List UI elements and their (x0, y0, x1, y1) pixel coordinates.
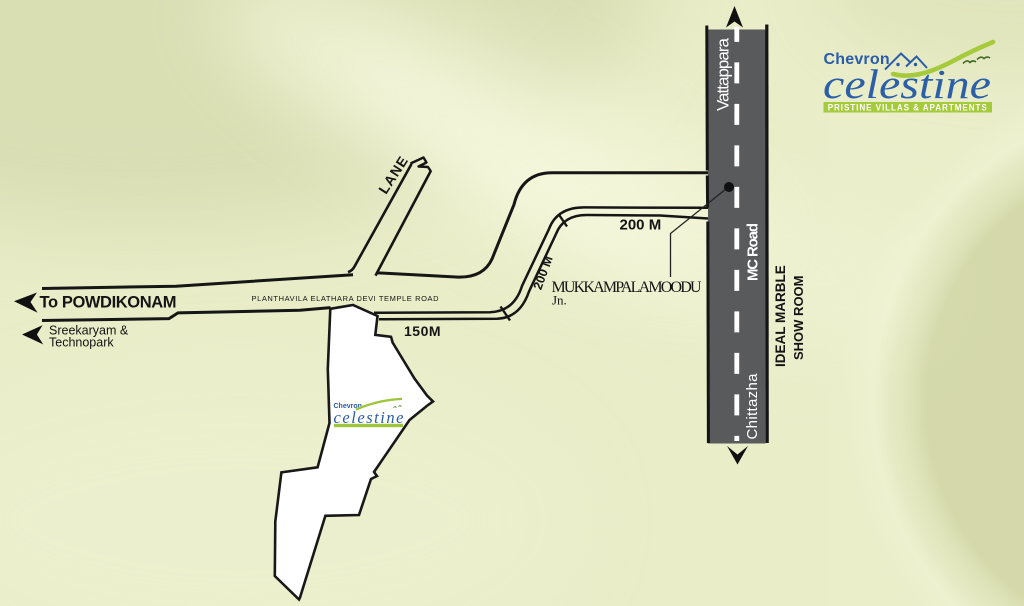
svg-text:Vattappara: Vattappara (714, 37, 733, 111)
svg-text:MUKKAMPALAMOODU: MUKKAMPALAMOODU (552, 279, 702, 296)
svg-text:200 M: 200 M (620, 217, 662, 234)
svg-text:celestine: celestine (823, 61, 991, 107)
svg-text:SHOW ROOM: SHOW ROOM (791, 276, 806, 361)
svg-text:Chittazha: Chittazha (744, 373, 761, 440)
svg-text:IDEAL MARBLE: IDEAL MARBLE (773, 265, 788, 367)
svg-text:Jn.: Jn. (552, 293, 567, 308)
svg-text:To POWDIKONAM: To POWDIKONAM (40, 294, 177, 312)
svg-text:150M: 150M (404, 323, 441, 339)
svg-text:MC Road: MC Road (745, 223, 762, 281)
svg-text:PLANTHAVILA ELATHARA DEVI TEMP: PLANTHAVILA ELATHARA DEVI TEMPLE ROAD (252, 294, 440, 303)
svg-text:PRISTINE VILLAS & APARTMENTS: PRISTINE VILLAS & APARTMENTS (828, 102, 988, 112)
svg-text:Technopark: Technopark (49, 336, 114, 350)
